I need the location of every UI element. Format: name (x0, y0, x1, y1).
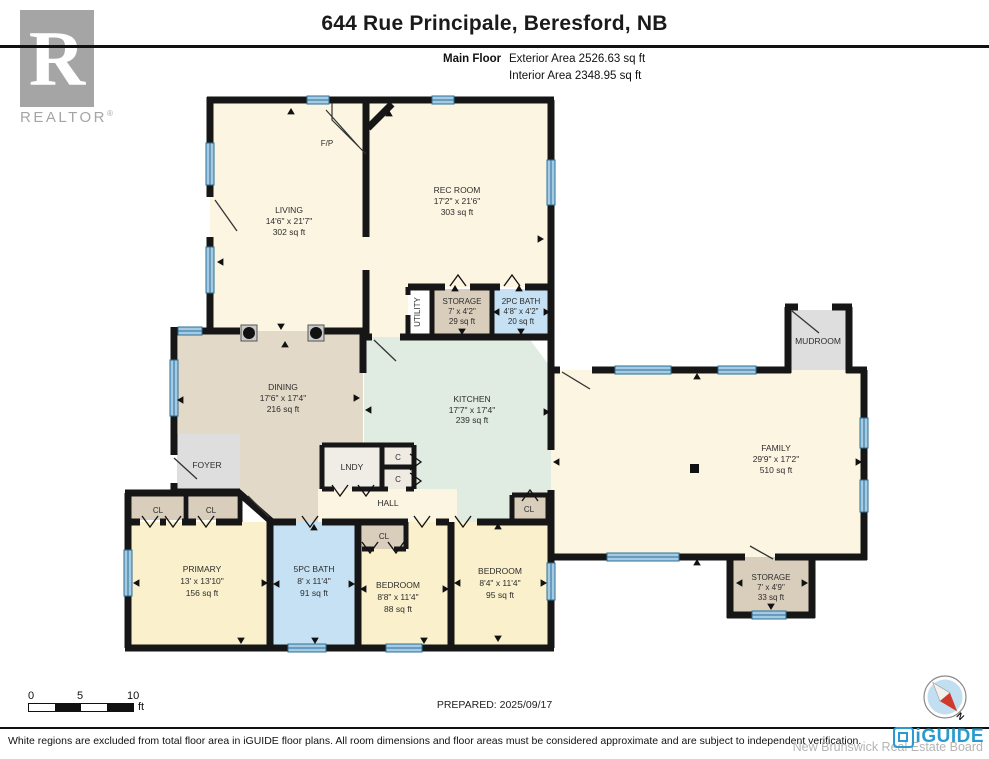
closet-c1-label: C (395, 453, 401, 462)
closet-b-label: CL (206, 506, 217, 515)
fireplace-label: F/P (321, 139, 333, 148)
foyer-label: FOYER (192, 460, 221, 470)
closet-a-label: CL (153, 506, 164, 515)
window-icon (386, 644, 422, 652)
window-icon (178, 327, 202, 335)
bedroom1-dims: 8'8" x 11'4" (377, 592, 418, 602)
realtor-logo-box: R (20, 10, 94, 107)
closet-kitchen-label: CL (524, 505, 535, 514)
title-divider (0, 45, 989, 48)
realtor-r-glyph: R (29, 20, 85, 98)
window-icon (615, 366, 671, 374)
bedroom1-name: BEDROOM (376, 580, 420, 590)
kitchen-area: 239 sq ft (456, 415, 489, 425)
window-icon (752, 611, 786, 619)
bath5-dims: 8' x 11'4" (297, 576, 331, 586)
window-icon (547, 160, 555, 205)
closet-c2-label: C (395, 475, 401, 484)
utility-label: UTILITY (413, 296, 422, 326)
disclaimer-text: White regions are excluded from total fl… (8, 735, 861, 747)
primary-dims: 13' x 13'10" (180, 576, 224, 586)
window-icon (170, 360, 178, 416)
dining-area: 216 sq ft (267, 404, 300, 414)
bedroom2-name: BEDROOM (478, 566, 522, 576)
kitchen-dims: 17'7" x 17'4" (449, 405, 496, 415)
window-icon (718, 366, 756, 374)
floor-plan-page: { "header": { "title": "644 Rue Principa… (0, 0, 989, 759)
rec-name: REC ROOM (434, 185, 481, 195)
bedroom1-area: 88 sq ft (384, 604, 413, 614)
primary-name: PRIMARY (183, 564, 222, 574)
bath2-dims: 4'8" x 4'2" (504, 307, 539, 316)
room-passage (366, 287, 408, 337)
family-name: FAMILY (761, 443, 791, 453)
storage-top-dims: 7' x 4'2" (448, 307, 476, 316)
mudroom-label: MUDROOM (795, 336, 841, 346)
window-icon (307, 96, 329, 104)
storage-top-name: STORAGE (443, 297, 482, 306)
window-icon (607, 553, 679, 561)
bedroom2-area: 95 sq ft (486, 590, 515, 600)
kitchen-name: KITCHEN (453, 394, 490, 404)
window-icon (432, 96, 454, 104)
living-dims: 14'6" x 21'7" (266, 216, 313, 226)
dining-dims: 17'6" x 17'4" (260, 393, 307, 403)
lndy-label: LNDY (341, 462, 364, 472)
living-area: 302 sq ft (273, 227, 306, 237)
window-icon (860, 480, 868, 512)
bath2-area: 20 sq ft (508, 317, 535, 326)
dining-name: DINING (268, 382, 298, 392)
bath5-area: 91 sq ft (300, 588, 329, 598)
living-name: LIVING (275, 205, 303, 215)
footer-divider (0, 727, 989, 729)
iguide-logo: iGUIDE (893, 726, 984, 748)
rec-area: 303 sq ft (441, 207, 474, 217)
storage-top-area: 29 sq ft (449, 317, 476, 326)
storage-right-dims: 7' x 4'9" (757, 583, 785, 592)
room-family (551, 370, 864, 557)
bath5-name: 5PC BATH (294, 564, 335, 574)
window-icon (124, 550, 132, 596)
storage-right-area: 33 sq ft (758, 593, 785, 602)
iguide-icon (893, 727, 914, 748)
hall-label: HALL (377, 498, 399, 508)
window-icon (860, 418, 868, 448)
bedroom2-dims: 8'4" x 11'4" (479, 578, 520, 588)
bath2-name: 2PC BATH (502, 297, 541, 306)
window-icon (547, 563, 555, 600)
realtor-wordmark: REALTOR® (20, 109, 110, 126)
window-icon (206, 247, 214, 293)
primary-area: 156 sq ft (186, 588, 219, 598)
iguide-wordmark: iGUIDE (916, 726, 984, 748)
window-icon (206, 143, 214, 185)
storage-right-name: STORAGE (752, 573, 791, 582)
floor-plan-drawing: LIVING 14'6" x 21'7" 302 sq ft REC ROOM … (0, 0, 989, 759)
prepared-date: PREPARED: 2025/09/17 (0, 699, 989, 711)
family-dims: 29'9" x 17'2" (753, 454, 800, 464)
family-area: 510 sq ft (760, 465, 793, 475)
rec-dims: 17'2" x 21'6" (434, 196, 481, 206)
closet-bedroom1-label: CL (379, 532, 390, 541)
window-icon (288, 644, 326, 652)
realtor-logo: R REALTOR® (20, 10, 110, 126)
